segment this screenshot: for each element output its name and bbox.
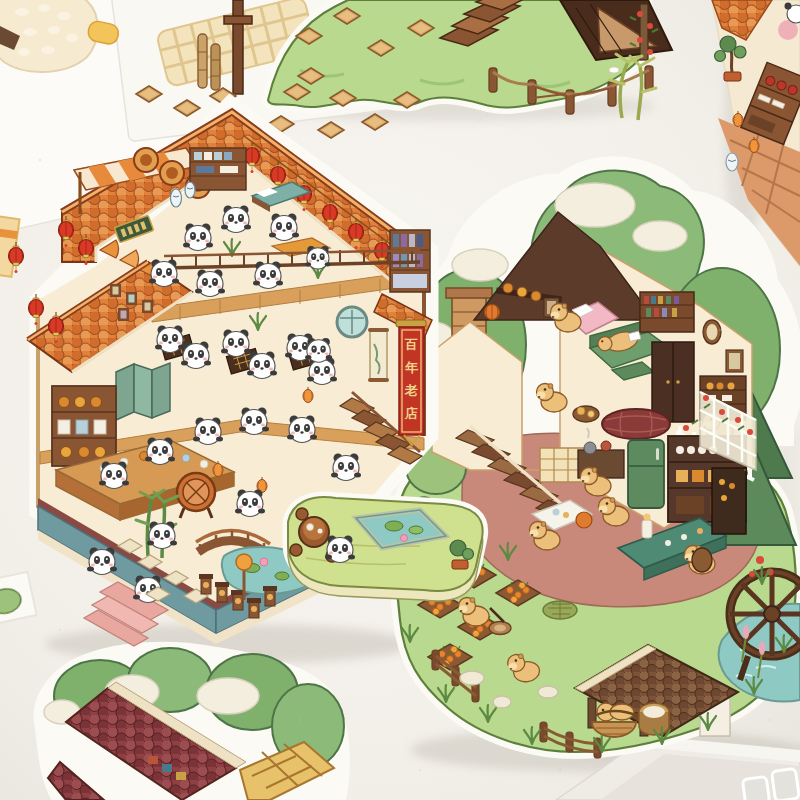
panda-figure [147,522,177,549]
porcelain-vase [726,153,738,171]
panda-figure [247,352,277,379]
keyboard-key[interactable] [771,768,799,800]
banner-char-3: 老 [404,383,418,398]
plaid-rug [602,409,670,439]
panda-figure [181,342,211,369]
panda-figure [145,438,175,465]
panda-figure [287,416,317,443]
photo-of-sticker-sheets: 百 年 老 店 [0,0,800,800]
panda-figure [155,326,185,353]
scene-canvas: 百 年 老 店 [0,0,800,800]
banner-char-1: 百 [404,337,418,352]
panda-figure [331,454,361,481]
cloud-blob [633,221,687,251]
keyboard-key[interactable] [742,776,769,800]
display-shelf [190,148,246,190]
panda-figure [183,224,213,251]
wall-bookshelf [640,292,694,332]
panda-figure [325,536,355,563]
panda-figure [221,206,251,233]
drum [177,473,215,518]
panda-figure [239,408,269,435]
cloud-blob [452,249,508,281]
panda-figure [87,548,117,575]
barrel [692,548,712,572]
banner-char-4: 店 [404,406,418,421]
panda-figure [99,462,129,489]
scroll-painting [368,328,389,382]
stool [290,544,302,556]
panda-figure [269,214,299,241]
moon-window [337,307,367,337]
panda-figure [195,270,225,297]
panda-figure [193,418,223,445]
red-roof-corner-sticker [40,648,344,800]
panda-figure [149,260,179,287]
tea-terrace [288,497,483,601]
folding-screen [116,363,170,420]
stool [296,508,308,520]
breakfast-table [573,406,599,422]
panda-figure [305,246,331,269]
panda-figure [235,490,265,517]
pumpkin [576,512,592,528]
grass-mound-sticker [268,0,672,120]
panda-figure [253,262,283,289]
tall-jar-shelf [52,386,116,466]
capybara-cottage-sticker [396,162,800,758]
panda-figure [221,330,251,357]
shop-banner: 百 年 老 店 [396,320,426,445]
banner-char-2: 年 [404,360,419,375]
panda-figure [305,338,332,362]
green-fridge [628,440,664,508]
dark-doorway [712,468,746,534]
wardrobe [652,342,694,422]
